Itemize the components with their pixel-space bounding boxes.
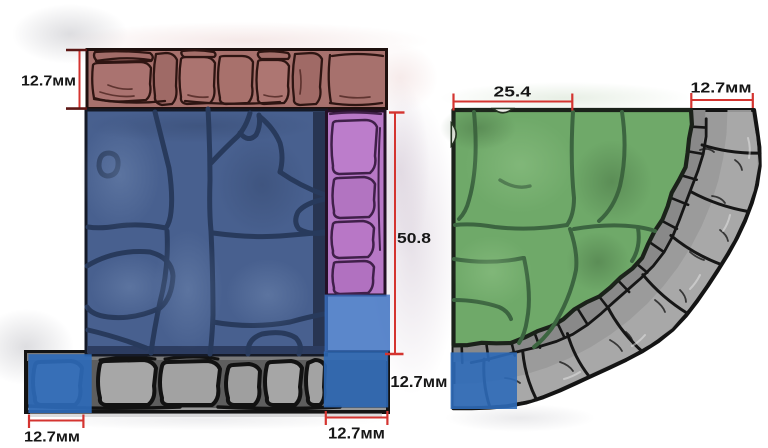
svg-text:25.4: 25.4 (494, 83, 532, 100)
svg-text:50.8: 50.8 (397, 230, 431, 247)
svg-text:12.7мм: 12.7мм (328, 426, 385, 443)
svg-text:12.7мм: 12.7мм (691, 80, 752, 97)
svg-text:12.7мм: 12.7мм (24, 429, 80, 446)
svg-text:12.7мм: 12.7мм (21, 73, 76, 90)
svg-text:12.7мм: 12.7мм (390, 374, 447, 391)
